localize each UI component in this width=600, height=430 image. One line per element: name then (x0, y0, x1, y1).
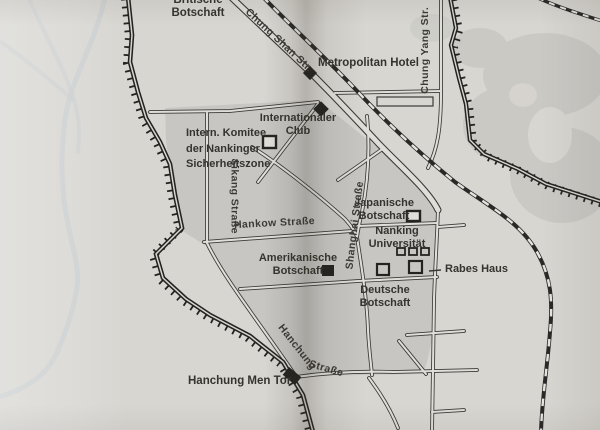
map-photo: Britische Botschaft Chung Shan Str. Metr… (0, 0, 600, 430)
label-line: Botschaft (352, 297, 418, 310)
label-line: Botschaft (258, 265, 338, 278)
label-hanchung-men-tor: Hanchung Men Tor (188, 375, 291, 388)
label-britische-botschaft: Britische Botschaft (150, 0, 246, 19)
label-line: Internationaler (254, 112, 342, 125)
label-nanking-universitaet: Nanking Universität (364, 225, 430, 250)
label-metropolitan-hotel: Metropolitan Hotel (318, 57, 419, 70)
label-line: Botschaft (352, 210, 416, 223)
label-line: Universität (364, 238, 430, 251)
label-chung-yang-str: Chung Yang Str. (419, 0, 432, 100)
label-japanische-botschaft: Japanische Botschaft (352, 197, 416, 222)
rabes-haus-leader (429, 270, 441, 271)
label-line: Amerikanische (258, 252, 338, 265)
river-moat (0, 0, 105, 398)
label-amerikanische-botschaft: Amerikanische Botschaft (258, 252, 338, 277)
label-line: Intern. Komitee (186, 126, 270, 142)
label-line: Botschaft (150, 7, 246, 20)
label-deutsche-botschaft: Deutsche Botschaft (352, 284, 418, 309)
label-line: Japanische (352, 197, 416, 210)
label-line: Deutsche (352, 284, 418, 297)
label-rabes-haus: Rabes Haus (445, 263, 508, 276)
label-line: Nanking (364, 225, 430, 238)
